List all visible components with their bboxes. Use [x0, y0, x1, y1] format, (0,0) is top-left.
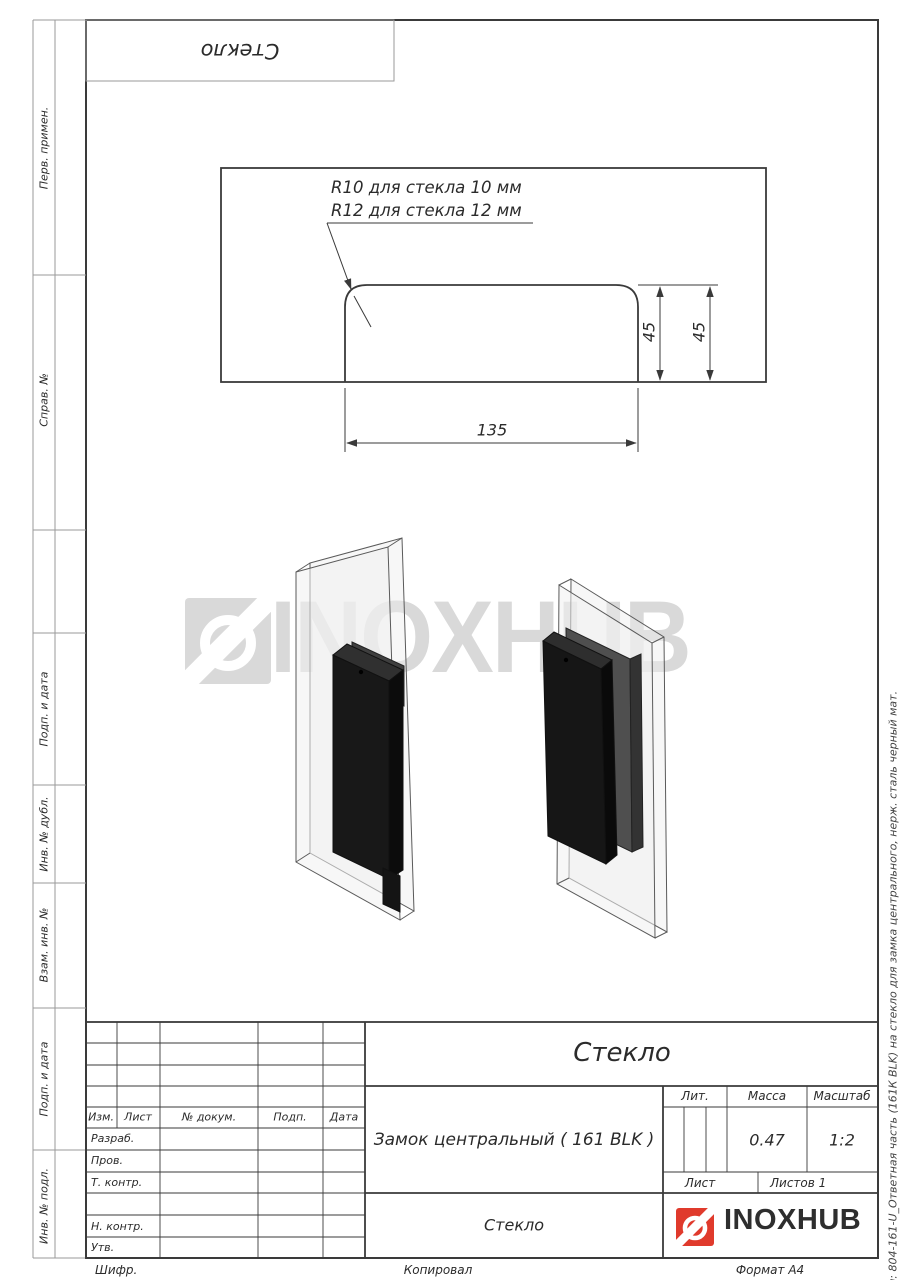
strip-label-sprav-no: Справ. №: [38, 373, 51, 427]
footer-format: Формат A4: [736, 1263, 804, 1277]
strip-label-inv-dubl: Инв. № дубл.: [38, 796, 51, 871]
dimension-lines: [327, 223, 718, 452]
watermark-logo-icon: [185, 598, 271, 684]
tb-sheets-label: Листов 1: [770, 1176, 826, 1190]
strip-label-perv-primen: Перв. примен.: [38, 107, 51, 190]
radius-callout-line1: R10 для стекла 10 мм: [331, 178, 522, 197]
company-logo-text: INOXHUB: [724, 1204, 861, 1237]
tb-header-doc: № докум.: [182, 1111, 236, 1124]
tb-designation: Стекло: [573, 1038, 671, 1068]
tb-row-tkontr: Т. контр.: [91, 1176, 142, 1189]
strip-label-podp-data-1: Подп. и дата: [38, 672, 51, 747]
iso-view-left: [296, 538, 414, 920]
tb-part-name: Замок центральный ( 161 BLK ): [374, 1130, 655, 1150]
tb-mass-label: Масса: [748, 1089, 786, 1103]
tb-header-data: Дата: [330, 1111, 358, 1124]
footer-cipher: Шифр.: [95, 1263, 137, 1277]
tb-lit-label: Лит.: [681, 1089, 709, 1103]
dim-45-outer: 45: [690, 322, 709, 342]
strip-label-inv-podl: Инв. № подл.: [38, 1168, 51, 1244]
iso-view-right: [543, 579, 667, 938]
radius-callout-line2: R12 для стекла 12 мм: [331, 201, 522, 220]
tb-sheet-label: Лист: [685, 1176, 715, 1190]
file-note: Файл: 804-161-U_Ответная часть (161К BLK…: [887, 691, 900, 1280]
company-logo: INOXHUB: [676, 1204, 861, 1237]
tb-row-razrab: Разраб.: [91, 1132, 134, 1145]
tb-row-utv: Утв.: [91, 1241, 114, 1254]
strip-label-podp-data-2: Подп. и дата: [38, 1042, 51, 1117]
tb-header-izm: Изм.: [88, 1111, 114, 1124]
top-stamp-designation: Стекло: [201, 39, 280, 63]
tb-scale-value: 1:2: [829, 1131, 855, 1150]
dim-45-inner: 45: [640, 322, 659, 342]
drawing-sheet: INOXHUB: [0, 0, 905, 1280]
dim-135-width: 135: [477, 421, 508, 440]
tb-header-list: Лист: [124, 1111, 152, 1124]
tb-row-nkontr: Н. контр.: [91, 1220, 144, 1233]
tb-scale-label: Масштаб: [813, 1089, 870, 1103]
tb-row-prov: Пров.: [91, 1154, 123, 1167]
tb-header-podp: Подп.: [273, 1111, 306, 1124]
footer-copied: Копировал: [404, 1263, 473, 1277]
strip-label-vzam-inv: Взам. инв. №: [38, 908, 51, 983]
tb-mass-value: 0.47: [749, 1131, 785, 1150]
tb-material: Стекло: [484, 1216, 544, 1235]
